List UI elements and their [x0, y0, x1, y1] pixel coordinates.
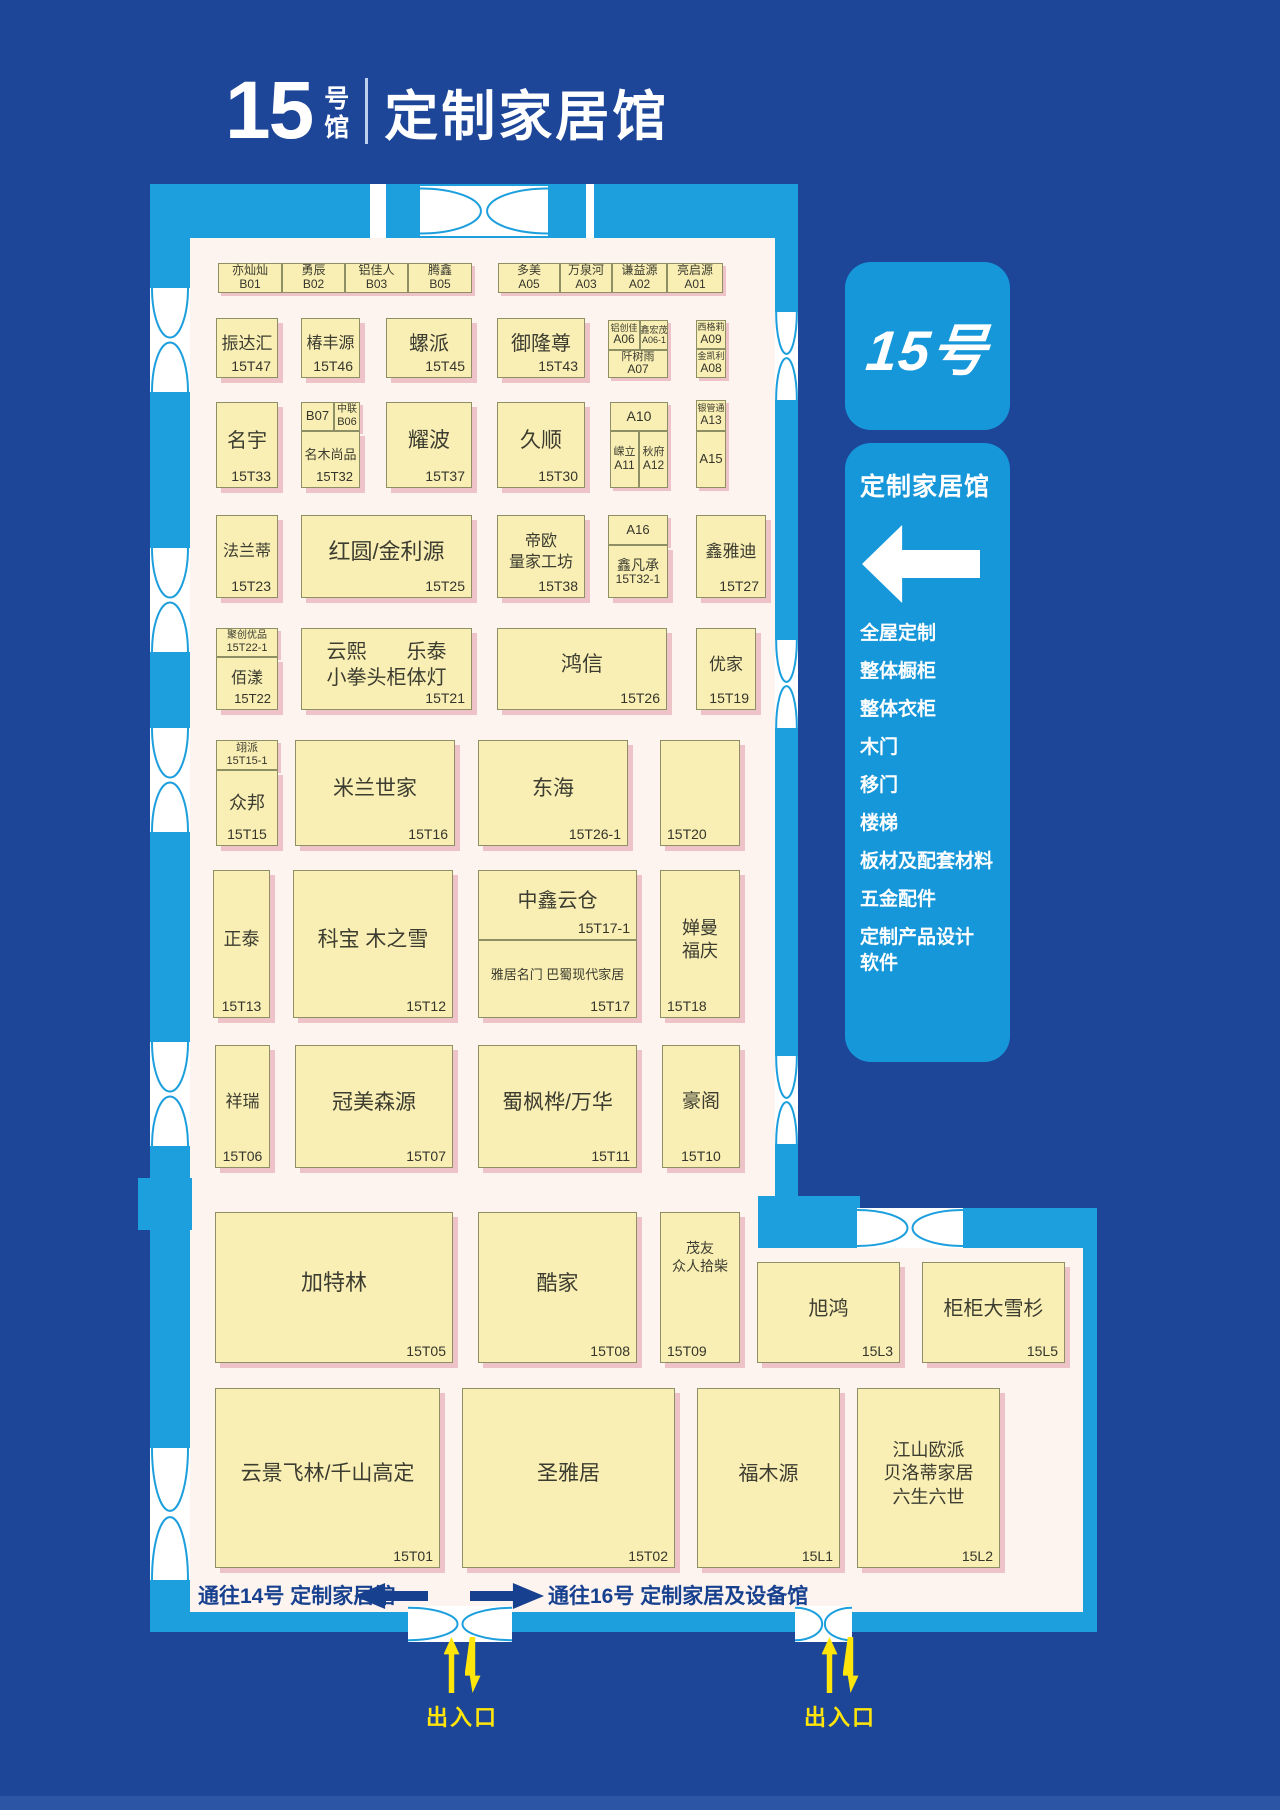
category-item: 整体衣柜 — [860, 697, 1000, 723]
booth-15T01[interactable]: 云景飞林/千山高定15T01 — [215, 1388, 440, 1568]
booth-number: A10 — [627, 408, 652, 424]
booth-name: 酷家 — [537, 1270, 579, 1297]
booth-number: 15T17 — [590, 998, 630, 1014]
category-item: 楼梯 — [860, 811, 1000, 837]
booth-number: A16 — [626, 523, 649, 538]
booth-name: 江山欧派贝洛蒂家居六生六世 — [884, 1439, 974, 1509]
booth-name: 加特林 — [301, 1269, 367, 1298]
booth-number: 15T20 — [667, 826, 707, 842]
booth-number: A02 — [629, 278, 650, 292]
booth-15T27[interactable]: 鑫雅迪15T27 — [696, 515, 766, 598]
booth-number: 15T23 — [231, 578, 271, 594]
booth-A13[interactable]: 银管通A13 — [696, 400, 726, 431]
booth-number: 15T30 — [538, 468, 578, 484]
booth-name: 聚创优品 — [227, 630, 267, 642]
door-opening — [150, 1448, 190, 1580]
booth-number: 15T37 — [425, 468, 465, 484]
booth-number: B01 — [239, 278, 260, 292]
booth-number: 15T22-1 — [227, 642, 268, 655]
booth-15T10[interactable]: 豪阁15T10 — [662, 1045, 740, 1168]
booth-15T30[interactable]: 久顺15T30 — [497, 402, 585, 488]
booth-name: 红圆/金利源 — [328, 538, 444, 567]
category-list: 全屋定制整体橱柜整体衣柜木门移门楼梯板材及配套材料五金配件定制产品设计 软件 — [860, 621, 1000, 977]
booth-A16[interactable]: A16 — [608, 515, 668, 545]
category-item: 全屋定制 — [860, 621, 1000, 647]
booth-number: 15T01 — [393, 1548, 433, 1564]
booth-B05[interactable]: 腾鑫B05 — [408, 263, 472, 293]
booth-name: 翊派 — [236, 742, 258, 755]
category-item: 五金配件 — [860, 887, 1000, 913]
booth-number: 15T11 — [591, 1148, 630, 1164]
booth-name: 米兰世家 — [333, 775, 417, 802]
booth-15T43[interactable]: 御隆尊15T43 — [497, 318, 585, 378]
booth-A01[interactable]: 亮启源A01 — [667, 263, 723, 293]
booth-name: 云景飞林/千山高定 — [241, 1460, 415, 1487]
booth-name: 柜柜大雪杉 — [944, 1296, 1044, 1322]
booth-15L3[interactable]: 旭鸿15L3 — [757, 1262, 900, 1363]
booth-number: A12 — [643, 459, 664, 473]
category-item: 整体橱柜 — [860, 659, 1000, 685]
booth-number: 15T13 — [214, 998, 269, 1014]
door-opening — [775, 640, 798, 728]
booth-number: 15T10 — [663, 1148, 739, 1164]
booth-name: 谦益源 — [621, 264, 657, 278]
booth-name: 名宇 — [227, 428, 267, 454]
hall-wall — [1083, 1248, 1097, 1612]
booth-name: 耀波 — [408, 427, 450, 454]
down-arrow-icon — [465, 1637, 481, 1693]
booth-15T09[interactable]: 茂友众人拾柴15T09 — [660, 1212, 740, 1363]
booth-15T37[interactable]: 耀波15T37 — [386, 402, 472, 488]
door-opening — [857, 1208, 963, 1248]
booth-number: 15T38 — [538, 578, 578, 594]
category-item: 移门 — [860, 773, 1000, 799]
booth-name: 鑫凡承 — [617, 557, 659, 573]
info-panel-title: 定制家居馆 — [860, 467, 1000, 503]
booth-15T19[interactable]: 优家15T19 — [696, 628, 756, 710]
booth-name: 鸿信 — [561, 651, 603, 678]
booth-name: 婵曼福庆 — [682, 917, 718, 964]
booth-15T02[interactable]: 圣雅居15T02 — [462, 1388, 675, 1568]
door-opening — [150, 548, 190, 652]
booth-number: B02 — [303, 278, 324, 292]
category-item: 定制产品设计 软件 — [860, 925, 1000, 977]
door-opening — [420, 186, 548, 236]
booth-15T32[interactable]: 名木尚品15T32 — [301, 431, 360, 488]
booth-A03[interactable]: 万泉河A03 — [560, 263, 612, 293]
booth-name: 中联 — [337, 404, 357, 416]
booth-15T16[interactable]: 米兰世家15T16 — [295, 740, 455, 846]
category-item: 板材及配套材料 — [860, 849, 1000, 875]
booth-15T08[interactable]: 酷家15T08 — [478, 1212, 637, 1363]
booth-number: B05 — [429, 278, 450, 292]
footer-strip — [0, 1796, 1280, 1810]
hall-name: 定制家居馆 — [384, 72, 669, 151]
booth-number: 15T25 — [425, 578, 465, 594]
booth-A02[interactable]: 谦益源A02 — [612, 263, 667, 293]
booth-name: 众邦 — [229, 792, 265, 815]
booth-number: 15T19 — [709, 690, 749, 706]
booth-B07[interactable]: B07 — [301, 402, 334, 431]
booth-number: 15T45 — [425, 358, 465, 374]
booth-name: 多美 — [517, 264, 541, 278]
booth-15T46[interactable]: 椿丰源15T46 — [301, 318, 360, 378]
booth-name: 中鑫云仓 — [518, 888, 598, 914]
booth-number: 15L2 — [962, 1548, 993, 1564]
booth-name: 正泰 — [224, 928, 260, 951]
booth-15T13[interactable]: 正泰15T13 — [213, 870, 270, 1018]
booth-B01[interactable]: 亦灿灿B01 — [218, 263, 282, 293]
booth-name: 亮启源 — [677, 264, 713, 278]
booth-name: 优家 — [709, 654, 743, 676]
booth-A15[interactable]: A15 — [696, 431, 726, 488]
hall-number-unit: 号 馆 — [324, 85, 349, 143]
booth-15T25[interactable]: 红圆/金利源15T25 — [301, 515, 472, 598]
booth-number: A07 — [627, 363, 648, 377]
wall-gap — [370, 184, 386, 238]
booth-number: 15L3 — [862, 1343, 893, 1359]
booth-number: 15T18 — [667, 998, 707, 1014]
booth-name: 名木尚品 — [304, 447, 356, 464]
door-opening — [775, 1056, 798, 1144]
left-arrow-icon — [862, 525, 980, 603]
booth-number: A01 — [684, 278, 705, 292]
booth-A09[interactable]: 西格莉A09 — [696, 320, 726, 349]
booth-number: 15T22 — [234, 691, 271, 706]
hall-wall — [150, 238, 190, 1612]
booth-A06-1[interactable]: 鑫宏茂A06-1 — [640, 320, 668, 350]
booth-number: 15T27 — [719, 578, 759, 594]
booth-number: 15T33 — [231, 468, 271, 484]
booth-number: 15T46 — [313, 358, 353, 374]
booth-name: 雅居名门 巴蜀现代家居 — [491, 967, 625, 984]
booth-15T05[interactable]: 加特林15T05 — [215, 1212, 453, 1363]
booth-15T18[interactable]: 婵曼福庆15T18 — [660, 870, 740, 1018]
booth-name: 铝佳人 — [358, 264, 394, 278]
entrance-arrows — [822, 1637, 859, 1693]
booth-B02[interactable]: 勇辰B02 — [282, 263, 345, 293]
booth-name: 福木源 — [739, 1461, 799, 1487]
hall-number: 15 — [225, 74, 312, 148]
booth-name: 亦灿灿 — [232, 264, 268, 278]
booth-A12[interactable]: 秋府A12 — [639, 431, 668, 488]
booth-15T17-1[interactable]: 中鑫云仓15T17-1 — [478, 870, 637, 940]
booth-number: 15L1 — [802, 1548, 833, 1564]
booth-B06[interactable]: 中联B06 — [334, 402, 360, 431]
hall-wall — [138, 1178, 192, 1230]
booth-name: 帝欧量家工坊 — [509, 532, 573, 574]
booth-15L2[interactable]: 江山欧派贝洛蒂家居六生六世15L2 — [857, 1388, 1000, 1568]
booth-number: A13 — [700, 414, 721, 428]
booth-number: 15T12 — [406, 998, 446, 1014]
booth-15T12[interactable]: 科宝 木之雪15T12 — [293, 870, 453, 1018]
hall-number-badge: 15号 — [845, 262, 1010, 430]
page-title: 15 号 馆 定制家居馆 — [225, 66, 669, 156]
booth-number: 15T06 — [216, 1148, 269, 1164]
booth-name: 御隆尊 — [511, 331, 571, 357]
booth-name: 勇辰 — [301, 264, 325, 278]
booth-15T22[interactable]: 佰漾15T22 — [216, 657, 278, 710]
booth-number: 15T15 — [217, 826, 277, 842]
booth-name: 蜀枫桦/万华 — [502, 1089, 613, 1116]
booth-15L1[interactable]: 福木源15L1 — [697, 1388, 840, 1568]
up-arrow-icon — [822, 1637, 838, 1693]
booth-15L5[interactable]: 柜柜大雪杉15L5 — [922, 1262, 1065, 1363]
booth-number: A15 — [699, 452, 722, 467]
hall-wall — [758, 1196, 860, 1248]
booth-number: 15T09 — [667, 1343, 707, 1359]
entrance-1: 出入口 — [414, 1637, 510, 1732]
booth-number: 15T08 — [590, 1343, 630, 1359]
booth-name: 鑫宏茂 — [641, 325, 668, 335]
booth-number: 15T05 — [406, 1343, 446, 1359]
booth-name: 祥瑞 — [226, 1091, 260, 1113]
door-opening — [775, 312, 798, 400]
hall-wall — [150, 1612, 1097, 1632]
booth-15T32-1[interactable]: 鑫凡承15T32-1 — [608, 545, 668, 598]
info-panel: 定制家居馆 全屋定制整体橱柜整体衣柜木门移门楼梯板材及配套材料五金配件定制产品设… — [845, 443, 1010, 1062]
booth-number: B06 — [337, 416, 357, 429]
booth-number: B07 — [306, 409, 329, 424]
booth-name: 科宝 木之雪 — [318, 926, 429, 953]
booth-name: 振达汇 — [222, 333, 273, 355]
entrance-label: 出入口 — [426, 1700, 498, 1732]
booth-number: A06 — [613, 333, 634, 347]
booth-number: B03 — [366, 278, 387, 292]
booth-15T38[interactable]: 帝欧量家工坊15T38 — [497, 515, 585, 598]
entrance-label: 出入口 — [804, 1700, 876, 1732]
booth-number: 15T21 — [425, 690, 465, 706]
booth-name: 云熙 乐泰小拳头柜体灯 — [327, 639, 447, 691]
booth-15T06[interactable]: 祥瑞15T06 — [215, 1045, 270, 1168]
booth-15T11[interactable]: 蜀枫桦/万华15T11 — [478, 1045, 637, 1168]
booth-A08[interactable]: 金凯利A08 — [696, 349, 726, 378]
booth-name: 旭鸿 — [809, 1296, 849, 1322]
booth-15T23[interactable]: 法兰蒂15T23 — [216, 515, 278, 598]
up-arrow-icon — [444, 1637, 460, 1693]
booth-number: 15L5 — [1027, 1343, 1058, 1359]
booth-number: 15T26 — [620, 690, 660, 706]
entrance-arrows — [444, 1637, 481, 1693]
booth-number: A05 — [518, 278, 539, 292]
booth-number: 15T32 — [316, 469, 353, 484]
hall-floor-plan: 亦灿灿B01勇辰B02铝佳人B03腾鑫B05多美A05万泉河A03谦益源A02亮… — [0, 0, 1280, 1810]
booth-15T47[interactable]: 振达汇15T47 — [216, 318, 278, 378]
booth-number: A09 — [700, 333, 721, 347]
booth-A10[interactable]: A10 — [610, 402, 668, 431]
booth-15T26-1[interactable]: 东海15T26-1 — [478, 740, 628, 846]
booth-name: 万泉河 — [568, 264, 604, 278]
booth-number: 15T02 — [628, 1548, 668, 1564]
booth-name: 鑫雅迪 — [706, 541, 757, 563]
booth-A06[interactable]: 铝创佳A06 — [608, 320, 640, 350]
booth-name: 椿丰源 — [306, 334, 354, 355]
booth-15T20[interactable]: 15T20 — [660, 740, 740, 846]
booth-name: 冠美森源 — [332, 1089, 416, 1116]
booth-name: 茂友众人拾柴 — [672, 1239, 728, 1275]
booth-A11[interactable]: 嵘立A11 — [610, 431, 639, 488]
booth-15T15-1[interactable]: 翊派15T15-1 — [216, 740, 278, 770]
door-opening — [150, 288, 190, 392]
booth-name: 腾鑫 — [428, 264, 452, 278]
booth-number: A03 — [575, 278, 596, 292]
wall-gap — [586, 184, 594, 238]
booth-15T15[interactable]: 众邦15T15 — [216, 770, 278, 846]
booth-B03[interactable]: 铝佳人B03 — [345, 263, 408, 293]
booth-A05[interactable]: 多美A05 — [498, 263, 560, 293]
booth-15T21[interactable]: 云熙 乐泰小拳头柜体灯15T21 — [301, 628, 472, 710]
booth-15T26[interactable]: 鸿信15T26 — [497, 628, 667, 710]
booth-name: 圣雅居 — [537, 1460, 600, 1487]
booth-name: 久顺 — [520, 427, 562, 454]
booth-15T33[interactable]: 名宇15T33 — [216, 402, 278, 488]
booth-name: 东海 — [532, 775, 574, 802]
booth-number: 15T43 — [538, 358, 578, 374]
booth-number: A08 — [700, 362, 721, 376]
booth-number: A11 — [614, 459, 634, 473]
door-opening — [150, 728, 190, 832]
corridor-to-16-label: 通往16号 定制家居及设备馆 — [548, 1580, 808, 1610]
booth-number: 15T26-1 — [569, 826, 621, 842]
booth-A07[interactable]: 阡树雨A07 — [608, 350, 668, 378]
booth-number: 15T32-1 — [616, 573, 661, 587]
booth-name: 螺派 — [409, 331, 449, 357]
down-arrow-icon — [843, 1637, 859, 1693]
booth-number: 15T07 — [406, 1148, 446, 1164]
booth-15T17[interactable]: 雅居名门 巴蜀现代家居15T17 — [478, 940, 637, 1018]
booth-number: 15T16 — [408, 826, 448, 842]
booth-name: 佰漾 — [231, 669, 263, 690]
booth-number: 15T17-1 — [578, 920, 630, 936]
booth-name: 法兰蒂 — [223, 542, 271, 563]
category-item: 木门 — [860, 735, 1000, 761]
entrance-2: 出入口 — [792, 1637, 888, 1732]
door-opening — [150, 1042, 190, 1146]
booth-15T07[interactable]: 冠美森源15T07 — [295, 1045, 453, 1168]
booth-name: 豪阁 — [682, 1090, 720, 1115]
title-divider — [365, 78, 368, 144]
booth-15T22-1[interactable]: 聚创优品15T22-1 — [216, 628, 278, 657]
booth-number: 15T47 — [231, 358, 271, 374]
booth-number: 15T15-1 — [227, 755, 268, 768]
booth-15T45[interactable]: 螺派15T45 — [386, 318, 472, 378]
booth-number: A06-1 — [642, 335, 666, 345]
